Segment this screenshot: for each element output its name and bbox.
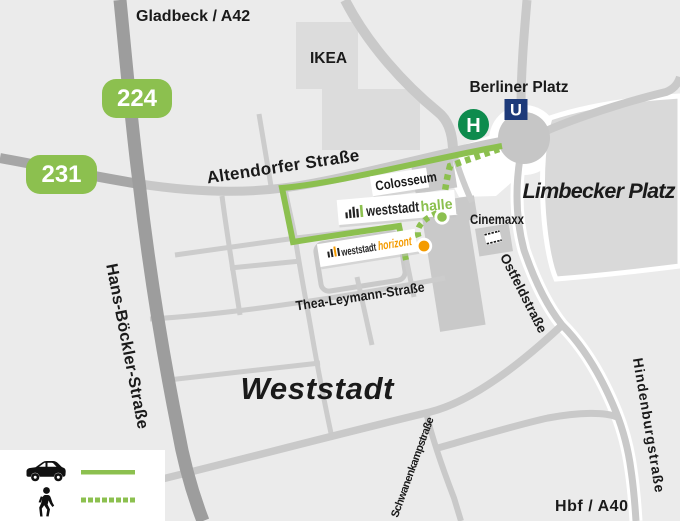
svg-text:Weststadt: Weststadt bbox=[241, 371, 396, 406]
svg-text:Cinemaxx: Cinemaxx bbox=[470, 212, 524, 227]
svg-text:Berliner Platz: Berliner Platz bbox=[469, 79, 568, 96]
svg-text:224: 224 bbox=[117, 85, 158, 112]
svg-text:231: 231 bbox=[41, 161, 81, 188]
svg-text:U: U bbox=[510, 102, 522, 120]
svg-text:Limbecker Platz: Limbecker Platz bbox=[523, 179, 676, 203]
svg-text:IKEA: IKEA bbox=[310, 50, 347, 67]
svg-text:Gladbeck / A42: Gladbeck / A42 bbox=[136, 8, 250, 25]
svg-text:Hbf / A40: Hbf / A40 bbox=[555, 498, 628, 515]
svg-text:H: H bbox=[466, 115, 480, 137]
